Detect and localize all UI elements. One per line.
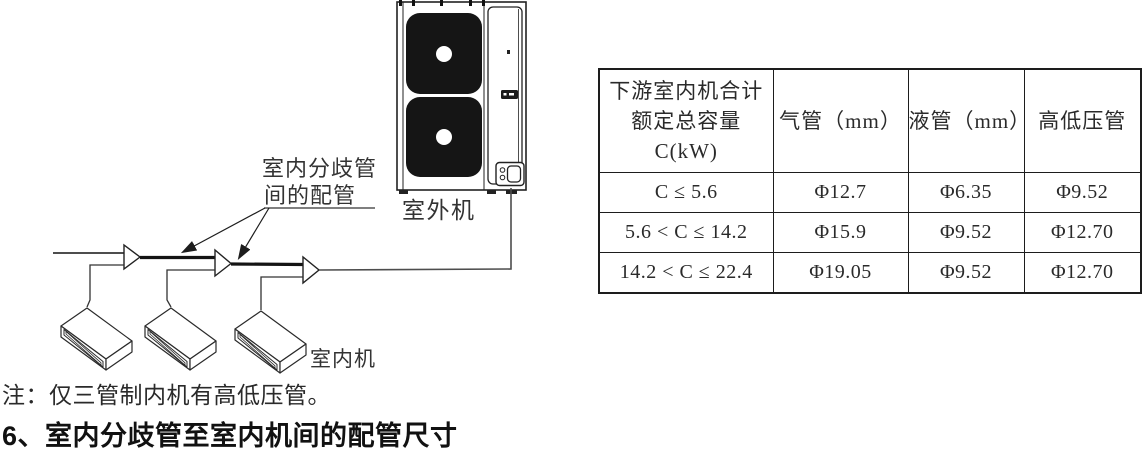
table-cell: 14.2 < C ≤ 22.4	[599, 253, 773, 294]
table-cell: Φ12.70	[1024, 253, 1141, 294]
leader-arrow-1	[183, 208, 265, 252]
table-header-cell: 气管（mm）	[773, 69, 908, 173]
branch-joint-2	[215, 250, 231, 276]
table-header-cell: 下游室内机合计 额定总容量C(kW)	[599, 69, 773, 173]
table-cell: Φ6.35	[908, 173, 1024, 213]
table-cell: Φ19.05	[773, 253, 908, 294]
piping-diagram: 室内分歧管 间的配管 室外机 室内机	[0, 0, 560, 385]
table-row: C ≤ 5.6 Φ12.7 Φ6.35 Φ9.52	[599, 173, 1141, 213]
branch-pipe-label-line2: 间的配管	[264, 183, 356, 208]
leader-arrow-2	[239, 208, 269, 258]
panel-screw-icon	[507, 50, 510, 54]
branch-segment-2	[231, 264, 303, 265]
fan-hub-icon	[436, 46, 452, 62]
outdoor-unit-label: 室外机	[402, 198, 476, 223]
indoor-unit-label: 室内机	[310, 347, 376, 371]
indoor-unit-1	[61, 308, 132, 370]
table-row: 5.6 < C ≤ 14.2 Φ15.9 Φ9.52 Φ12.70	[599, 213, 1141, 253]
table-cell: 5.6 < C ≤ 14.2	[599, 213, 773, 253]
valve-box	[496, 163, 524, 186]
table-cell: Φ9.52	[1024, 173, 1141, 213]
manual-page: 室内分歧管 间的配管 室外机 室内机 下游室内机合计 额定总容量C(kW) 气管…	[0, 0, 1144, 461]
table-cell: Φ15.9	[773, 213, 908, 253]
table-cell: Φ12.7	[773, 173, 908, 213]
table-cell: Φ12.70	[1024, 213, 1141, 253]
indoor-unit-3	[235, 311, 306, 373]
table-cell: Φ9.52	[908, 213, 1024, 253]
table-header-cell: 液管（mm）	[908, 69, 1024, 173]
outdoor-unit	[397, 0, 526, 194]
drop-pipe-3	[261, 277, 303, 310]
service-panel	[488, 7, 522, 184]
section-heading: 6、室内分歧管至室内机间的配管尺寸	[2, 414, 458, 453]
note-text: 注：仅三管制内机有高低压管。	[2, 376, 331, 410]
drop-pipe-1	[87, 265, 124, 307]
branch-joint-1	[124, 245, 140, 269]
branch-pipe-annotation: 室内分歧管 间的配管	[183, 156, 377, 258]
branch-joint-3	[303, 257, 319, 283]
pipe-size-table: 下游室内机合计 额定总容量C(kW) 气管（mm） 液管（mm） 高低压管 C …	[598, 68, 1142, 294]
fan-hub-icon	[436, 129, 452, 145]
table-cell: Φ9.52	[908, 253, 1024, 294]
table-header-cell: 高低压管	[1024, 69, 1141, 173]
branch-pipe-label-line1: 室内分歧管	[262, 156, 377, 181]
table-row: 14.2 < C ≤ 22.4 Φ19.05 Φ9.52 Φ12.70	[599, 253, 1141, 294]
drop-pipe-2	[167, 270, 215, 307]
table-header-row: 下游室内机合计 额定总容量C(kW) 气管（mm） 液管（mm） 高低压管	[599, 69, 1141, 173]
indoor-unit-2	[145, 308, 216, 370]
table-cell: C ≤ 5.6	[599, 173, 773, 213]
